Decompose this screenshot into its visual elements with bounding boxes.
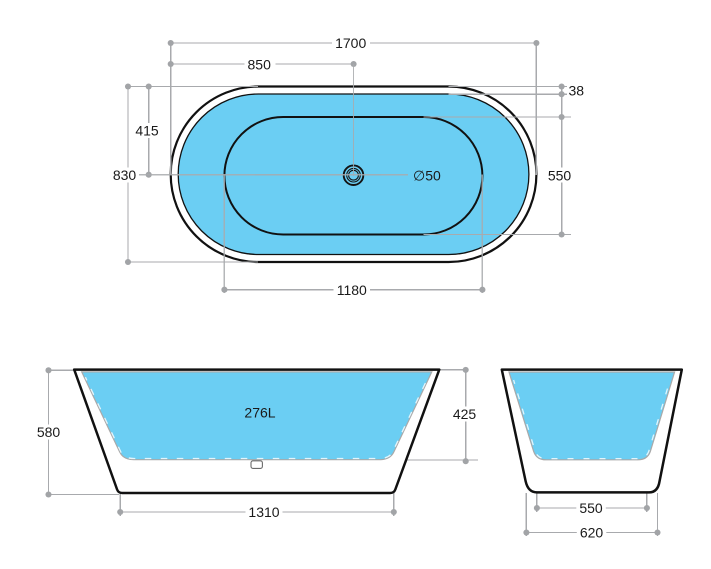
svg-text:276L: 276L [244,405,275,421]
svg-text:580: 580 [37,424,61,440]
svg-text:850: 850 [248,56,272,72]
svg-text:830: 830 [113,167,137,183]
svg-text:1310: 1310 [248,504,279,520]
svg-text:425: 425 [453,406,477,422]
svg-text:415: 415 [135,123,159,139]
svg-text:550: 550 [579,500,603,516]
svg-text:∅50: ∅50 [413,167,441,183]
svg-text:620: 620 [580,525,604,541]
svg-text:38: 38 [569,82,585,98]
svg-text:550: 550 [548,168,572,184]
svg-text:1180: 1180 [337,282,367,298]
svg-text:1700: 1700 [335,35,366,51]
